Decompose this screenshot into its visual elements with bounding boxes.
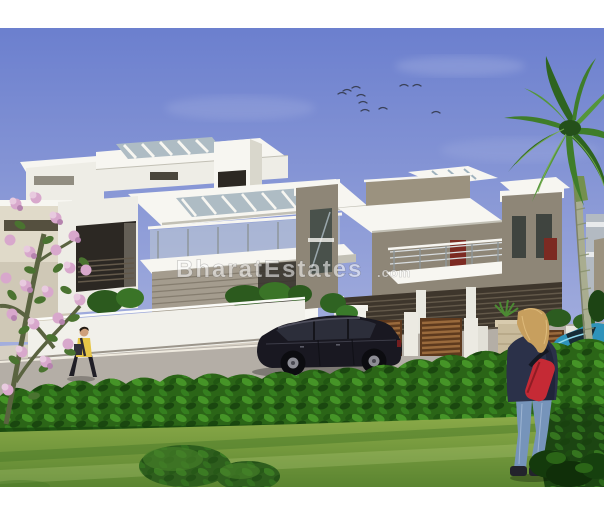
taillight xyxy=(397,340,401,347)
cloud xyxy=(395,56,525,76)
watermark-suffix: .com xyxy=(377,265,411,280)
villa-render-image: BharatEstates .com xyxy=(0,0,604,520)
red-door xyxy=(544,238,557,260)
cloud xyxy=(165,96,315,120)
scene-canvas: BharatEstates .com xyxy=(0,0,604,520)
watermark-text: BharatEstates xyxy=(176,256,363,283)
